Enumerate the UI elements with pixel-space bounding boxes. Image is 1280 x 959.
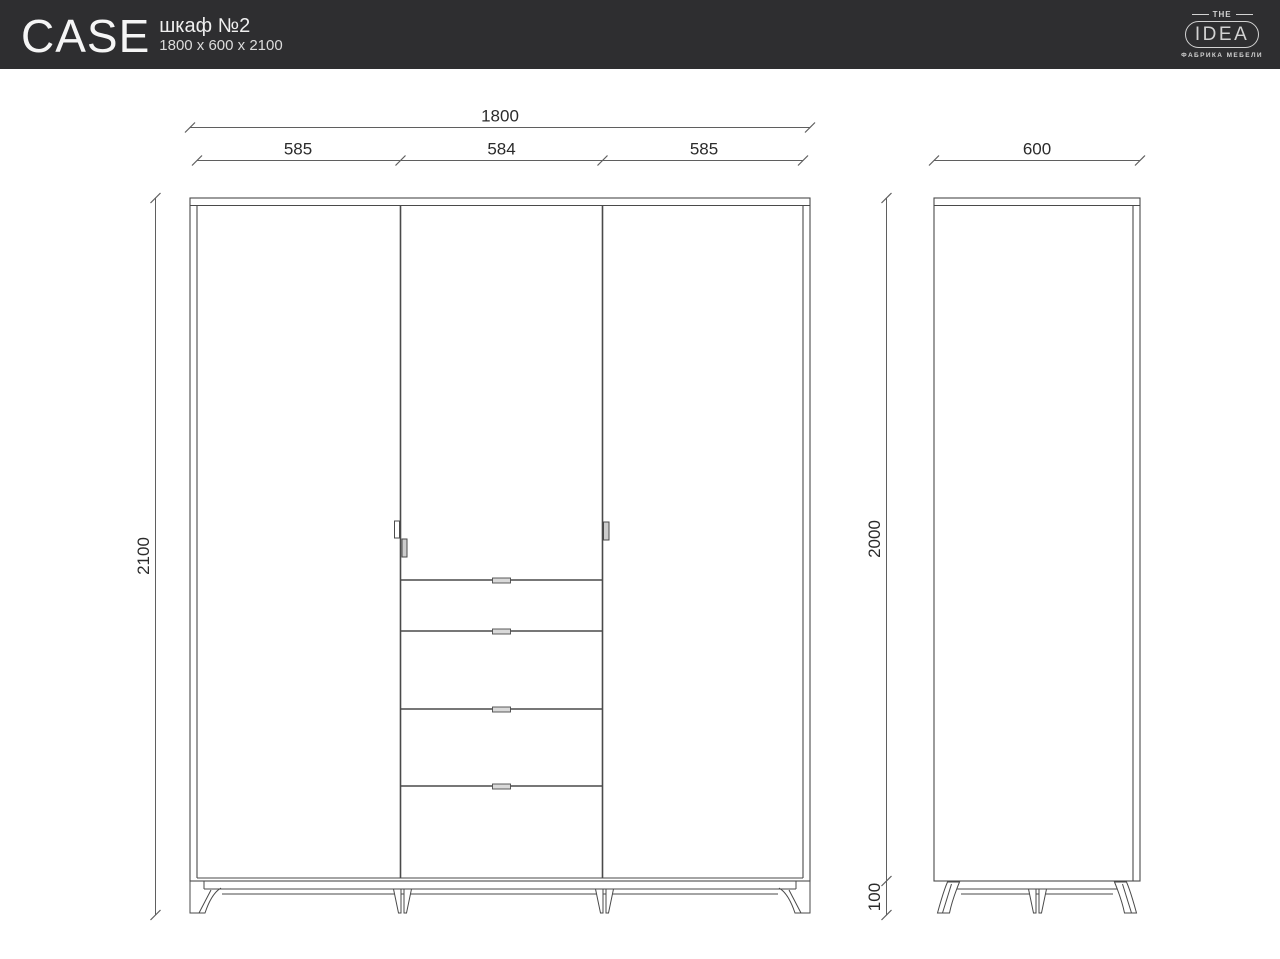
- logo-tagline-label: ФАБРИКА МЕБЕЛИ: [1181, 52, 1263, 59]
- left-door-handle: [395, 521, 400, 538]
- leg-height-label: 100: [865, 883, 884, 911]
- side-middle-leg-b: [1039, 889, 1047, 913]
- technical-drawing: 1800 585 584 585 600 2100 2000 100: [0, 0, 1280, 959]
- logo-right-rule: [1236, 14, 1253, 15]
- drawer-handle-2: [493, 629, 511, 634]
- total-height-label: 2100: [134, 537, 153, 575]
- dimension-labels: 1800 585 584 585 600 2100 2000 100: [134, 107, 1051, 912]
- header-bar: CASE шкаф №2 1800 x 600 x 2100 THE IDEA …: [0, 0, 1280, 69]
- left-door-width-label: 585: [284, 140, 312, 159]
- product-type-label: шкаф №2: [159, 15, 282, 37]
- front-right-leg: [779, 881, 810, 913]
- front-legs: [190, 881, 810, 913]
- drawer-handle-4: [493, 784, 511, 789]
- middle-door-handle: [402, 539, 407, 557]
- right-door-width-label: 585: [690, 140, 718, 159]
- front-left-leg: [190, 881, 221, 913]
- product-subtitle-block: шкаф №2 1800 x 600 x 2100: [159, 15, 282, 54]
- side-carcass-outline: [934, 198, 1140, 881]
- dimension-lines: [151, 123, 1146, 921]
- side-middle-leg-a: [1029, 889, 1037, 913]
- product-name: CASE: [21, 14, 150, 58]
- logo-the-label: THE: [1213, 10, 1232, 19]
- logo-left-rule: [1192, 14, 1209, 15]
- body-height-label: 2000: [865, 520, 884, 558]
- middle-door-width-label: 584: [487, 140, 515, 159]
- front-carcass-outline: [190, 198, 810, 881]
- side-back-leg: [1115, 882, 1137, 913]
- front-middle-leg-1b: [404, 889, 412, 913]
- front-middle-leg-2b: [606, 889, 614, 913]
- logo-top-row: THE: [1192, 10, 1253, 19]
- side-front-leg: [938, 882, 960, 913]
- depth-label: 600: [1023, 140, 1051, 159]
- side-view: [934, 198, 1140, 913]
- dimension-ticks: [151, 123, 1146, 921]
- front-middle-leg-1a: [394, 889, 402, 913]
- front-middle-leg-2a: [596, 889, 604, 913]
- side-legs: [938, 882, 1137, 913]
- drawer-handle-3: [493, 707, 511, 712]
- logo-brand-label: IDEA: [1185, 21, 1259, 48]
- front-view: [190, 198, 810, 913]
- total-width-label: 1800: [481, 107, 519, 126]
- product-size-label: 1800 x 600 x 2100: [159, 37, 282, 54]
- drawer-handle-1: [493, 578, 511, 583]
- right-door-handle: [604, 522, 610, 540]
- brand-logo: THE IDEA ФАБРИКА МЕБЕЛИ: [1181, 10, 1263, 59]
- product-title-block: CASE шкаф №2 1800 x 600 x 2100: [0, 12, 283, 58]
